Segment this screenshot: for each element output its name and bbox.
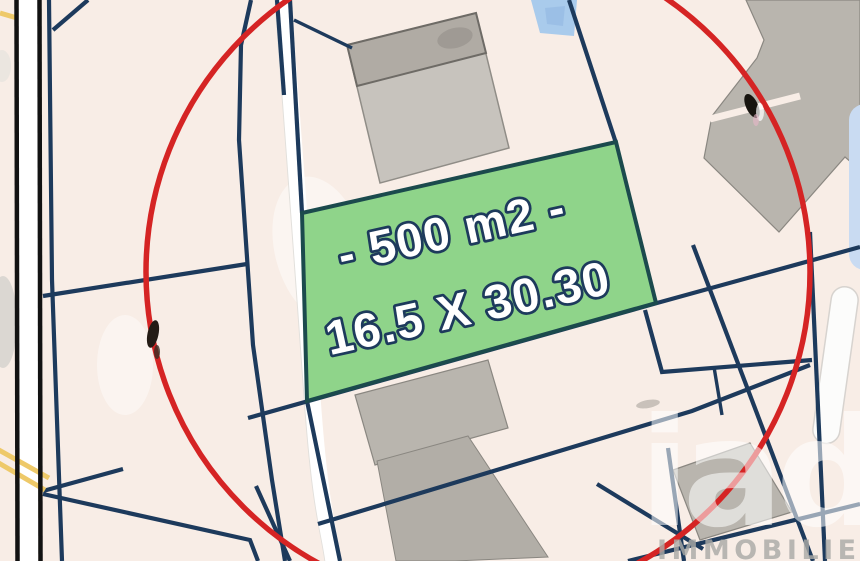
watermark-brand: IMMOBILIER: [657, 535, 860, 561]
map-smudge: [154, 345, 160, 359]
frame-line-left: [17, 0, 18, 561]
frame-line-right: [40, 0, 41, 561]
map-smudge: [753, 114, 759, 126]
erased-label-patch: [97, 315, 153, 415]
map-canvas: - 500 m2 - 16.5 X 30.30 iad IMMOBILIER: [0, 0, 860, 561]
pool-right-edge: [849, 104, 860, 270]
pool-top-center-inner: [545, 6, 565, 26]
cadastral-map-image: - 500 m2 - 16.5 X 30.30 iad IMMOBILIER: [0, 0, 860, 561]
